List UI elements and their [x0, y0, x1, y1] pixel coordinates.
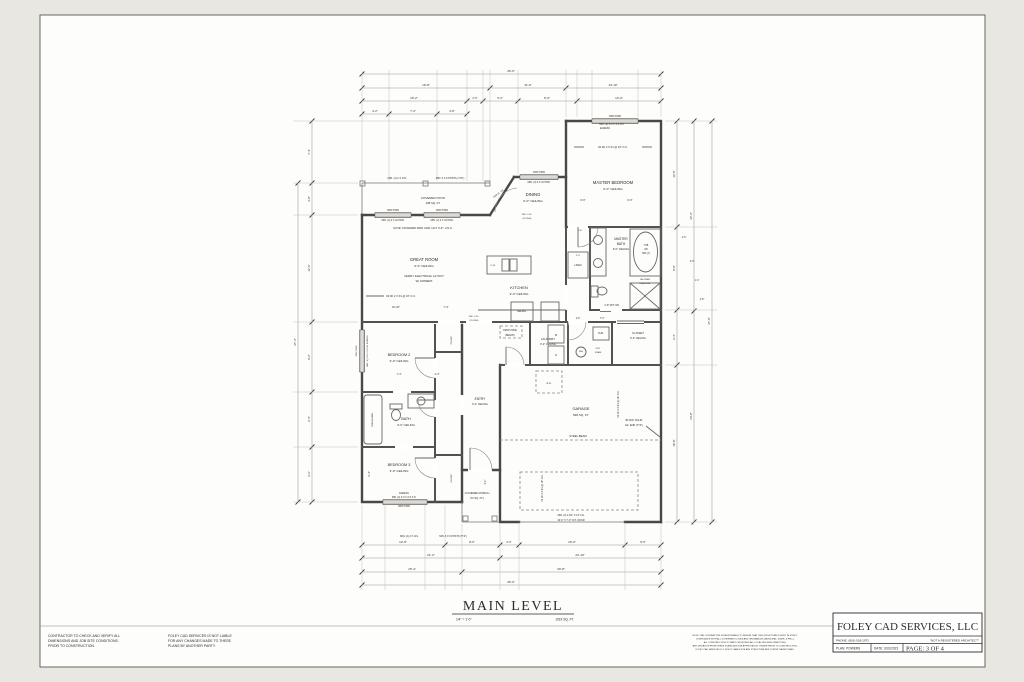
plan-label: A.A. [547, 381, 552, 385]
plan-label: #2 DF 2 X 6's @ 16" O.C. [386, 294, 416, 298]
fine-print-line: COMPLIANCE WITH ALL GOVERNING CODES AND … [696, 638, 795, 641]
plan-label: EGRESS [600, 127, 610, 130]
plan-label: 15'-4" [408, 567, 416, 571]
plan-label: DINING [526, 192, 541, 197]
plan-label: 7'-4" [397, 373, 402, 376]
fine-print-line: ALL CONSTRUCTION TO MEET OR EXCEED ALL L… [704, 641, 787, 644]
plan-label: 9'-0" CEILING [613, 247, 629, 251]
total-area: 1919 SQ. FT. [555, 618, 574, 622]
plan-label: MIN. (2) 3'-0 X 4'-0 S.H. [392, 497, 417, 499]
plan-label: MIN. 6 X 6 POSTS (TYP.) [439, 535, 467, 538]
plan-label: EGRESS [399, 493, 409, 495]
plan-label: BLOCK SOLID [626, 419, 643, 422]
plan-label: 12'-6" [307, 264, 311, 271]
page-number: PAGE: 3 OF 4 [906, 646, 945, 653]
plan-label: 21'-2" [427, 553, 435, 557]
plan-label: 9'-0" CEILING [603, 187, 623, 191]
sheet-border [40, 15, 985, 667]
plan-label: 9'-0" [580, 198, 585, 202]
plan-label: MIN. 6 X 6 POSTS (TYP.) [436, 177, 465, 180]
company-phone: PHONE: (816) 518-2973 [836, 639, 869, 643]
plan-label: GARAGE [572, 406, 589, 411]
plan-label: VERIFY ELECTRICAL LAYOUT [404, 274, 444, 278]
plan-label: 2'-6" [576, 318, 581, 320]
plan-label: 3'-8" [307, 196, 311, 202]
plan-label: 1'-4" [695, 280, 700, 282]
company-name: FOLEY CAD SERVICES, LLC [837, 621, 978, 633]
plan-label: 8'-6" [469, 540, 475, 544]
registered-note: "NOT A REGISTERED ARCHITECT" [930, 639, 979, 643]
window [375, 213, 411, 218]
window [383, 500, 427, 505]
plan-label: D.W. [491, 265, 496, 267]
plan-label: MIN. (2) 1-3/4" X 14" LVL [558, 514, 585, 517]
plan-label: 18'-8" [672, 439, 676, 446]
window [360, 330, 365, 372]
plan-label: NOTE: STANDARD WND. HDR. HGT. 6'-8", U.N… [393, 226, 453, 230]
plan-label: 4'-8" [449, 109, 455, 113]
disclaimer-line: PRIOR TO CONSTRUCTION. [48, 644, 95, 648]
plan-label: 2'-8" [578, 230, 583, 232]
plan-label: ENTRY [475, 397, 487, 401]
plan-label: SPA (?) [642, 252, 650, 255]
fine-print-line: FOLEY CAD SERVICES LLC IS NOT LIABLE FOR… [696, 648, 795, 651]
plan-label: 12'-8" [399, 540, 407, 544]
plan-label: CLOSET [632, 331, 644, 335]
plan-label: 198 SQ. FT. [426, 201, 441, 205]
plan-label: #2 DF 2 X 6's @ 16" O.C. [617, 390, 620, 418]
plan-label: (FLUSH) [523, 218, 532, 220]
plan-label: 3'-0" [690, 261, 695, 263]
plan-label: 3050 TWIN [533, 171, 545, 174]
plan-label: GREAT ROOM [410, 257, 439, 262]
plan-label: MIN. (2) 2 X 10 HDR. [431, 219, 454, 222]
disclaimer-line: FOR ANY CHANGES MADE TO THESE [168, 639, 232, 643]
plan-label: 4'-8" [700, 299, 705, 301]
plan-label: 3050 TWIN [398, 505, 410, 508]
plan-label: 6'-4" [307, 416, 311, 422]
plan-label: DRAIN [595, 351, 602, 354]
plan-label: 3050 TWIN [387, 209, 399, 212]
plan-label: CLOSET [451, 335, 453, 344]
plan-label: W/ OWNERS [416, 279, 433, 283]
plan-label: 11'-6" [524, 83, 531, 87]
plan-label: D [555, 354, 557, 357]
plan-label: #2 DF 2 X 6's @ 16" O.C. [541, 474, 544, 502]
plan-label: MIN. (2) 3'-0 X 4'-0 S.H. [599, 123, 625, 126]
plan-label: FUR. [598, 332, 604, 335]
disclaimer-line: DIMENSIONS AND JOB SITE CONDITIONS [48, 639, 118, 643]
disclaimer-line: CONTRACTOR TO CHECK AND VERIFY ALL [48, 634, 120, 638]
plan-label: 6'-4" [672, 334, 676, 340]
plan-label: W/H [579, 351, 584, 353]
plan-label: DBL. 2-FL. [522, 214, 533, 216]
plan-label: 16'-2" [410, 96, 418, 100]
plan-label: (72 SQ. FT.) [470, 496, 484, 500]
plan-label: BATH [401, 417, 411, 421]
plan-date: DATE: 3/31/2023 [874, 647, 898, 651]
plan-label: 9'-0" CEILING [523, 199, 543, 203]
plan-label: 5'-6" [640, 540, 646, 544]
plan-label: 4'-2" [372, 109, 378, 113]
title-block: FOLEY CAD SERVICES, LLC PHONE: (816) 518… [833, 613, 982, 653]
plan-label: FLR. [596, 348, 601, 350]
plan-label: 12'-8" [672, 170, 676, 177]
plan-label: 46'-0" [507, 69, 515, 73]
plan-label: (FLUSH) [470, 320, 479, 322]
plan-label: MIN. (2) 2 X 10 HDR. [528, 181, 551, 184]
drawing-sheet: MASTER BEDROOM9'-0" CEILINGDINING9'-0" C… [0, 0, 1024, 682]
plan-label: STEEL BEAM [569, 434, 587, 438]
page-title: MAIN LEVEL [463, 599, 563, 614]
plan-label: DBL. 2-FL. [469, 316, 480, 318]
plan-label: GLASS DR. [639, 282, 651, 285]
plan-label: KITCHEN [510, 285, 528, 290]
plan-label: #2 DF 2 X 6's @ 16" O.C. [598, 145, 628, 149]
plan-label: MIN. (2) 2 X 10 HDR. [382, 219, 405, 222]
plan-label: 9'-0" CEILING [414, 264, 434, 268]
plan-label: 16'-0" [568, 540, 576, 544]
plan-label: 24'-10" [575, 553, 584, 557]
plan-label: DROP ZONE [503, 330, 517, 332]
plan-label: 9'-0" CEILING [472, 403, 488, 406]
plan-label: CLOSET [451, 473, 453, 482]
plan-label: EA. END (TYP.) [625, 424, 643, 427]
plan-label: 9'-0" [627, 198, 632, 202]
plan-label: 4'-4" [435, 373, 440, 376]
fine-print-line: ANY DEVIATION FROM THESE PLANS MUST BE A… [693, 645, 798, 648]
plan-label: 598 SQ. FT. [573, 413, 589, 417]
plan-label: TUB [644, 245, 649, 247]
plan-label: 2'-0" [576, 255, 581, 257]
plan-label: 3'-0" [506, 540, 511, 544]
plan-label: 6'-6" [307, 471, 311, 477]
window [520, 175, 558, 180]
plan-label: 9'-0" CEILING [630, 337, 646, 340]
plan-label: 13'-0" [615, 96, 623, 100]
plan-label: MIN. (2) 2 X 10's [388, 177, 407, 180]
plan-label: BEDROOM 2 [388, 353, 411, 357]
plan-label: 7'-4" [410, 109, 416, 113]
plan-label: 30'-8" [557, 567, 565, 571]
plan-label: 7'-4" [443, 305, 448, 309]
plan-label: MASTER [614, 237, 628, 241]
plan-label: 9'-0" CEILING [540, 343, 556, 346]
plan-label: 11'-6" [369, 471, 371, 477]
plan-label: 9'-0" CEILING [397, 423, 415, 427]
disclaimer-line: FOLEY CAD SERVICES IS NOT LIABLE [168, 634, 232, 638]
plan-label: COVERED PORCH [465, 491, 490, 495]
plan-label: 9'-0" CEILING [390, 359, 409, 363]
plan-label: 19'-8" [422, 83, 430, 87]
disclaimer-line: PLANS BY ANOTHER PARTY. [168, 644, 216, 648]
plan-label: LINEN [574, 264, 581, 267]
plan-label: 3050 TWIN [609, 115, 621, 118]
plan-label: 3050 TWIN [436, 209, 448, 212]
plan-label: 3050 TWIN [356, 345, 358, 356]
plan-label: 37'-4" [293, 338, 297, 346]
plan-label: 5'-4" [497, 96, 503, 100]
plan-label: 9'-8" [672, 265, 676, 271]
plan-label: BEDROOM 3 [388, 463, 411, 467]
plan-label: MIN. (2) 2 X 10's [400, 535, 419, 538]
fine-print-line: NOTE: THE CONTRACTOR IS RESPONSIBLE TO I… [692, 634, 798, 637]
plan-label: MIN. (2) 3'-0 X 4'-0 S.H. EGRESS [367, 335, 369, 367]
plan-label: 9'-0" CEILING [510, 292, 529, 296]
plan-label: 7'-0" [600, 318, 605, 320]
plan-label: 19'-10" [392, 305, 400, 309]
plan-label: (BENCH) [505, 335, 515, 337]
plan-label: 2'-6" [472, 96, 477, 100]
plan-label: LAUNDRY [541, 337, 555, 341]
plan-label: 24'-8" [689, 412, 693, 419]
plan-label: 9'-0" CEILING [390, 469, 409, 473]
plan-label: 6'-2" [485, 480, 487, 485]
plan-label: 46'-0" [507, 580, 515, 584]
plan-label: COVERED PATIO [421, 196, 446, 200]
window [424, 213, 460, 218]
plan-label: BATH [617, 242, 626, 246]
plan-label: 22'-4" [689, 212, 693, 219]
plan-label: 14'-10" [608, 83, 617, 87]
plan-label: 47'-0" [707, 317, 711, 325]
plan-label: 9'-2" [307, 354, 311, 360]
plan-label: 16'-0" X 7'-0" O.H. DOOR [557, 519, 584, 522]
plan-label: MASTER BEDROOM [593, 180, 634, 185]
plan-label: 9'-0" [544, 96, 550, 100]
plan-label: SHOWER [640, 279, 650, 281]
drawing-scale: 1/4" = 1'-0" [456, 618, 472, 622]
plan-label: 2'-8" PKT. DR. [604, 304, 620, 307]
plan-name: PLAN: POWERS [836, 647, 860, 651]
plan-label: TUB/SHOWER [372, 412, 374, 427]
plan-label: 2'-6" [682, 237, 687, 239]
floor-plan-sheet-svg: MASTER BEDROOM9'-0" CEILINGDINING9'-0" C… [0, 0, 1024, 682]
plan-label: OR [644, 249, 648, 251]
plan-label: REFRIG. [517, 311, 527, 313]
plan-label: 7'-4" [307, 149, 311, 155]
